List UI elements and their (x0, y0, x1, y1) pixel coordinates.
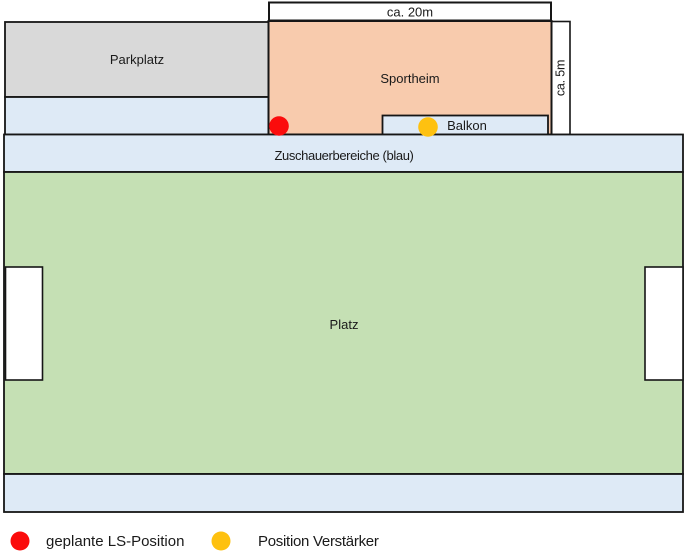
svg-text:ca. 5m: ca. 5m (554, 60, 568, 96)
svg-text:Parkplatz: Parkplatz (110, 52, 164, 67)
svg-text:Position Verstärker: Position Verstärker (258, 533, 379, 550)
svg-text:Sportheim: Sportheim (380, 71, 439, 86)
svg-text:Platz: Platz (330, 317, 359, 332)
svg-text:ca. 20m: ca. 20m (387, 5, 433, 20)
svg-text:Balkon: Balkon (447, 118, 487, 133)
svg-text:geplante LS-Position: geplante LS-Position (46, 533, 184, 550)
svg-text:Zuschauerbereiche (blau): Zuschauerbereiche (blau) (274, 148, 413, 163)
